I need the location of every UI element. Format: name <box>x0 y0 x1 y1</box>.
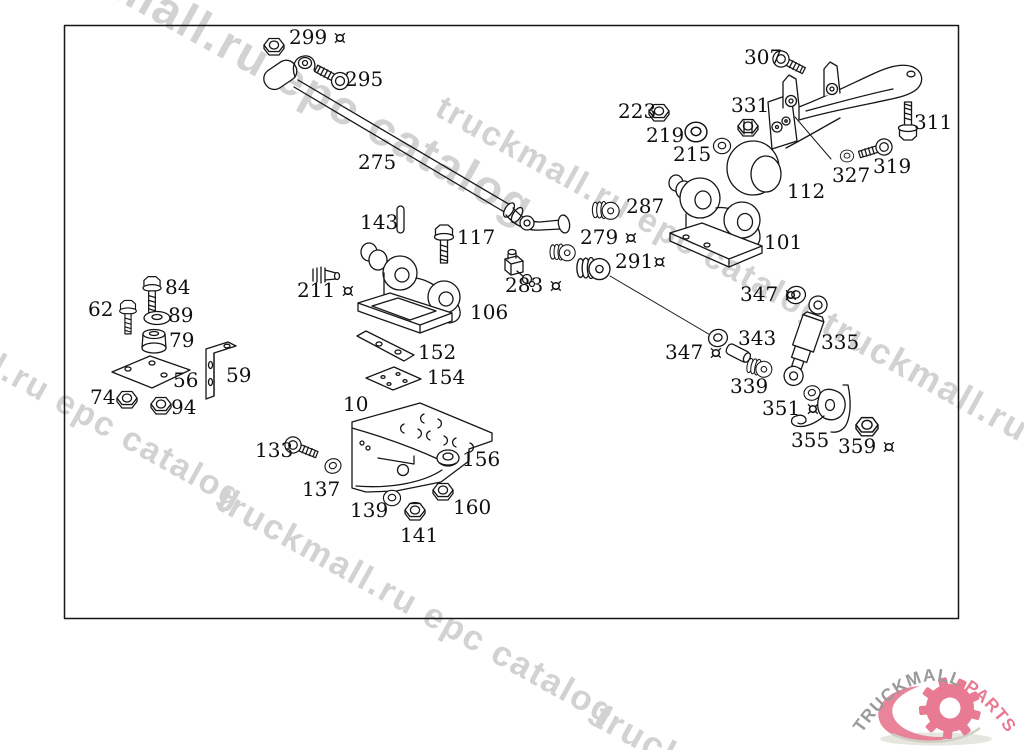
part-label-319: 319 <box>873 155 911 177</box>
part-label-56: 56 <box>173 369 198 391</box>
part-label-112: 112 <box>787 180 825 202</box>
part-label-59: 59 <box>226 364 251 386</box>
part-label-101: 101 <box>764 231 802 253</box>
part-label-339: 339 <box>730 375 768 397</box>
part-label-355: 355 <box>791 429 829 451</box>
part-label-117: 117 <box>457 226 495 248</box>
part-label-347a: 347 ¤ <box>740 283 797 305</box>
part-label-327: 327 <box>832 164 870 186</box>
part-label-62: 62 <box>88 298 113 320</box>
part-label-10: 10 <box>343 393 368 415</box>
part-label-343: 343 <box>738 327 776 349</box>
part-label-283: 283 ¤ <box>505 274 562 296</box>
truckmall-parts-logo: TRUCKMALL PARTS <box>848 652 1020 748</box>
part-label-94: 94 <box>171 396 196 418</box>
part-label-299: 299 ¤ <box>289 26 346 48</box>
part-label-359: 359 ¤ <box>838 435 895 457</box>
part-label-156: 156 <box>462 448 500 470</box>
part-label-106: 106 <box>470 301 508 323</box>
part-label-287: 287 <box>626 195 664 217</box>
part-label-141: 141 <box>400 524 438 546</box>
part-label-layer: 299 ¤295275143117211 ¤106152154101331371… <box>0 0 1024 750</box>
part-label-89: 89 <box>168 304 193 326</box>
part-label-133: 133 <box>255 439 293 461</box>
part-label-84: 84 <box>165 276 190 298</box>
part-label-295: 295 <box>345 68 383 90</box>
part-label-335: 335 <box>821 331 859 353</box>
part-label-351: 351 ¤ <box>762 397 819 419</box>
part-label-279: 279 ¤ <box>580 226 637 248</box>
part-label-211: 211 ¤ <box>297 279 354 301</box>
part-label-139: 139 <box>350 499 388 521</box>
part-label-223: 223 <box>618 100 656 122</box>
part-label-307: 307 <box>744 46 782 68</box>
part-label-215: 215 <box>673 143 711 165</box>
part-label-137: 137 <box>302 478 340 500</box>
part-label-143: 143 <box>360 211 398 233</box>
part-label-152: 152 <box>418 341 456 363</box>
part-label-154: 154 <box>427 366 465 388</box>
part-label-74: 74 <box>90 386 115 408</box>
parts-catalog-page: truckmall.ru epc catalogtruckmall.ru epc… <box>0 0 1024 750</box>
part-label-311: 311 <box>914 111 952 133</box>
part-label-79: 79 <box>169 329 194 351</box>
part-label-291: 291¤ <box>615 250 666 272</box>
part-label-160: 160 <box>453 496 491 518</box>
part-label-331: 331 <box>731 94 769 116</box>
part-label-347b: 347 ¤ <box>665 341 722 363</box>
part-label-275: 275 <box>358 151 396 173</box>
